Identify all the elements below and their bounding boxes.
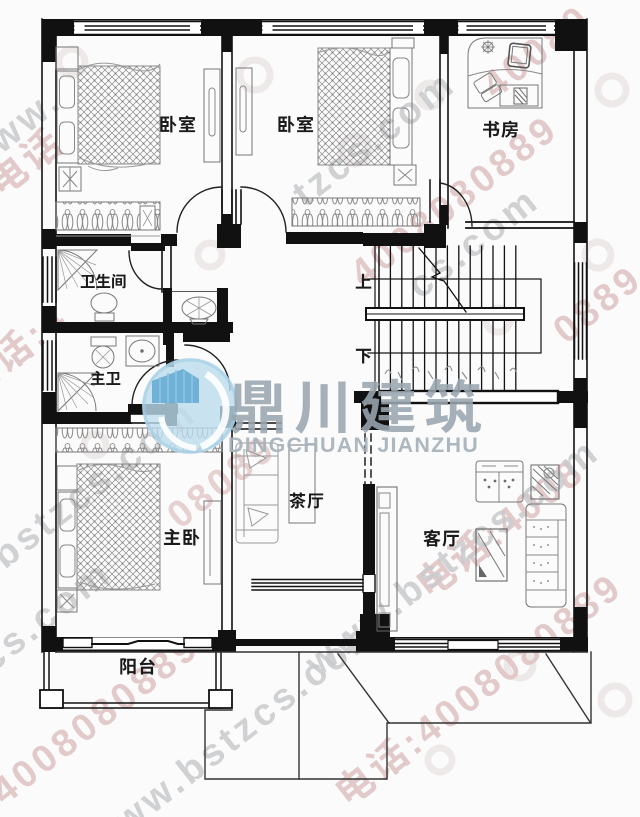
- svg-text:DINGCHUAN JIANZHU: DINGCHUAN JIANZHU: [228, 433, 479, 457]
- svg-text:40080: 40080: [475, 0, 600, 107]
- svg-text:0889: 0889: [546, 257, 640, 352]
